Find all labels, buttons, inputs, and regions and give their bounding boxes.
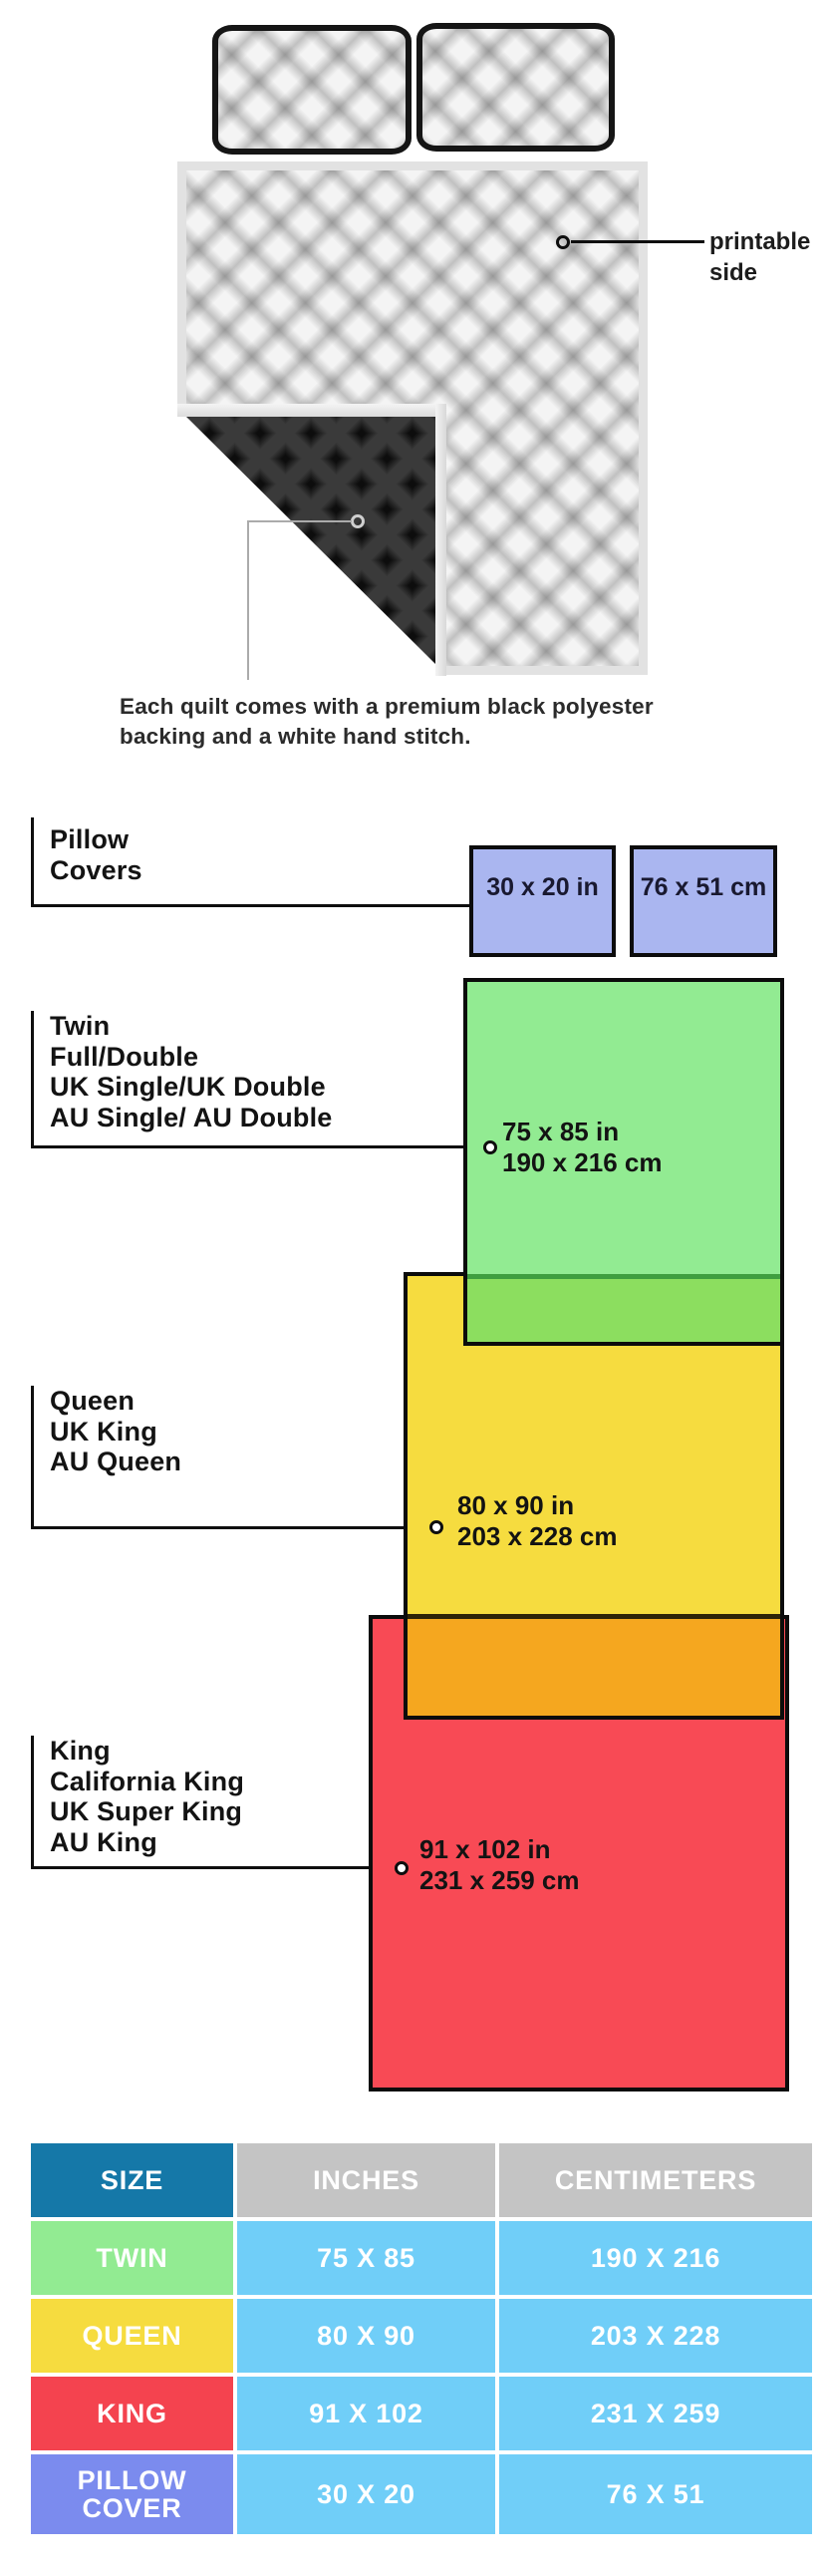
twin-dimensions: 75 x 85 in 190 x 216 cm (502, 1117, 662, 1177)
queen-label-line3: AU Queen (50, 1447, 181, 1477)
backing-pointer-line-v (247, 520, 249, 680)
twin-label-line4: AU Single/ AU Double (50, 1103, 333, 1133)
pillow-cover-dim-cm: 76 x 51 cm (634, 873, 773, 902)
printable-side-pointer-line (571, 240, 704, 243)
table-row-pillow-size-text: PILLOW COVER (78, 2466, 187, 2522)
king-label: King California King UK Super King AU Ki… (50, 1736, 244, 1857)
pillow-covers-elbow-v (31, 817, 34, 907)
pillow-illustration-left (212, 25, 412, 155)
king-dim-cm: 231 x 259 cm (419, 1865, 579, 1896)
king-dim-inches: 91 x 102 in (419, 1834, 579, 1865)
backing-marker-icon (351, 514, 365, 528)
table-row-king-inches: 91 X 102 (237, 2377, 495, 2450)
queen-elbow-v (31, 1386, 34, 1529)
queen-dim-inches: 80 x 90 in (457, 1490, 617, 1521)
queen-label-line2: UK King (50, 1417, 181, 1448)
pillow-covers-label-line2: Covers (50, 855, 142, 886)
table-header-size: SIZE (31, 2143, 233, 2217)
pillow-covers-label-line1: Pillow (50, 824, 142, 855)
queen-dimensions: 80 x 90 in 203 x 228 cm (457, 1490, 617, 1551)
printable-side-label-line2: side (709, 257, 810, 288)
table-row-queen-cm: 203 X 228 (499, 2299, 812, 2373)
backing-caption-line1: Each quilt comes with a premium black po… (120, 692, 654, 722)
table-row-pillow-size-line1: PILLOW (78, 2465, 187, 2495)
table-row-twin-cm: 190 X 216 (499, 2221, 812, 2295)
table-row-twin-inches: 75 X 85 (237, 2221, 495, 2295)
table-row-pillow-cm: 76 X 51 (499, 2454, 812, 2534)
king-label-line1: King (50, 1736, 244, 1767)
table-row-pillow-inches: 30 X 20 (237, 2454, 495, 2534)
pillow-cover-rect-inches: 30 x 20 in (469, 845, 616, 957)
table-header-inches: INCHES (237, 2143, 495, 2217)
king-elbow-v (31, 1736, 34, 1869)
queen-marker-icon (429, 1520, 443, 1534)
table-row-king-cm: 231 X 259 (499, 2377, 812, 2450)
printable-side-marker-icon (556, 235, 570, 249)
table-row-queen-inches: 80 X 90 (237, 2299, 495, 2373)
pillow-covers-label: Pillow Covers (50, 824, 142, 885)
pillow-illustration-right (416, 23, 615, 152)
backing-pointer-line-h (248, 520, 352, 522)
pillow-cover-dim-inches: 30 x 20 in (473, 873, 612, 902)
king-label-line3: UK Super King (50, 1796, 244, 1827)
twin-dim-inches: 75 x 85 in (502, 1117, 662, 1147)
king-label-line4: AU King (50, 1827, 244, 1858)
quilt-binding-vertical (435, 404, 446, 676)
king-label-line2: California King (50, 1767, 244, 1797)
twin-label: Twin Full/Double UK Single/UK Double AU … (50, 1011, 333, 1132)
table-row-pillow-size-line2: COVER (82, 2493, 181, 2523)
king-dimensions: 91 x 102 in 231 x 259 cm (419, 1834, 579, 1895)
printable-side-label-line1: printable (709, 226, 810, 257)
size-guide-infographic: printable side Each quilt comes with a p… (0, 0, 825, 2576)
king-marker-icon (395, 1861, 409, 1875)
printable-side-label: printable side (709, 226, 810, 288)
twin-elbow-v (31, 1011, 34, 1148)
table-row-queen-size: QUEEN (31, 2299, 233, 2373)
pillow-covers-elbow-h (31, 904, 479, 907)
table-header-centimeters: CENTIMETERS (499, 2143, 812, 2217)
table-row-pillow-size: PILLOW COVER (31, 2454, 233, 2534)
table-row-king-size: KING (31, 2377, 233, 2450)
twin-elbow-h (31, 1145, 485, 1148)
twin-label-line3: UK Single/UK Double (50, 1072, 333, 1103)
backing-caption-line2: backing and a white hand stitch. (120, 722, 654, 752)
queen-elbow-h (31, 1526, 431, 1529)
queen-label: Queen UK King AU Queen (50, 1386, 181, 1477)
twin-label-line2: Full/Double (50, 1042, 333, 1073)
king-elbow-h (31, 1866, 397, 1869)
twin-label-line1: Twin (50, 1011, 333, 1042)
queen-dim-cm: 203 x 228 cm (457, 1521, 617, 1552)
size-summary-table: SIZE INCHES CENTIMETERS TWIN 75 X 85 190… (31, 2143, 812, 2534)
queen-label-line1: Queen (50, 1386, 181, 1417)
twin-dim-cm: 190 x 216 cm (502, 1147, 662, 1178)
backing-caption: Each quilt comes with a premium black po… (120, 692, 654, 752)
twin-marker-icon (483, 1140, 497, 1154)
quilt-binding-horizontal (177, 404, 446, 417)
table-row-twin-size: TWIN (31, 2221, 233, 2295)
pillow-cover-rect-cm: 76 x 51 cm (630, 845, 777, 957)
